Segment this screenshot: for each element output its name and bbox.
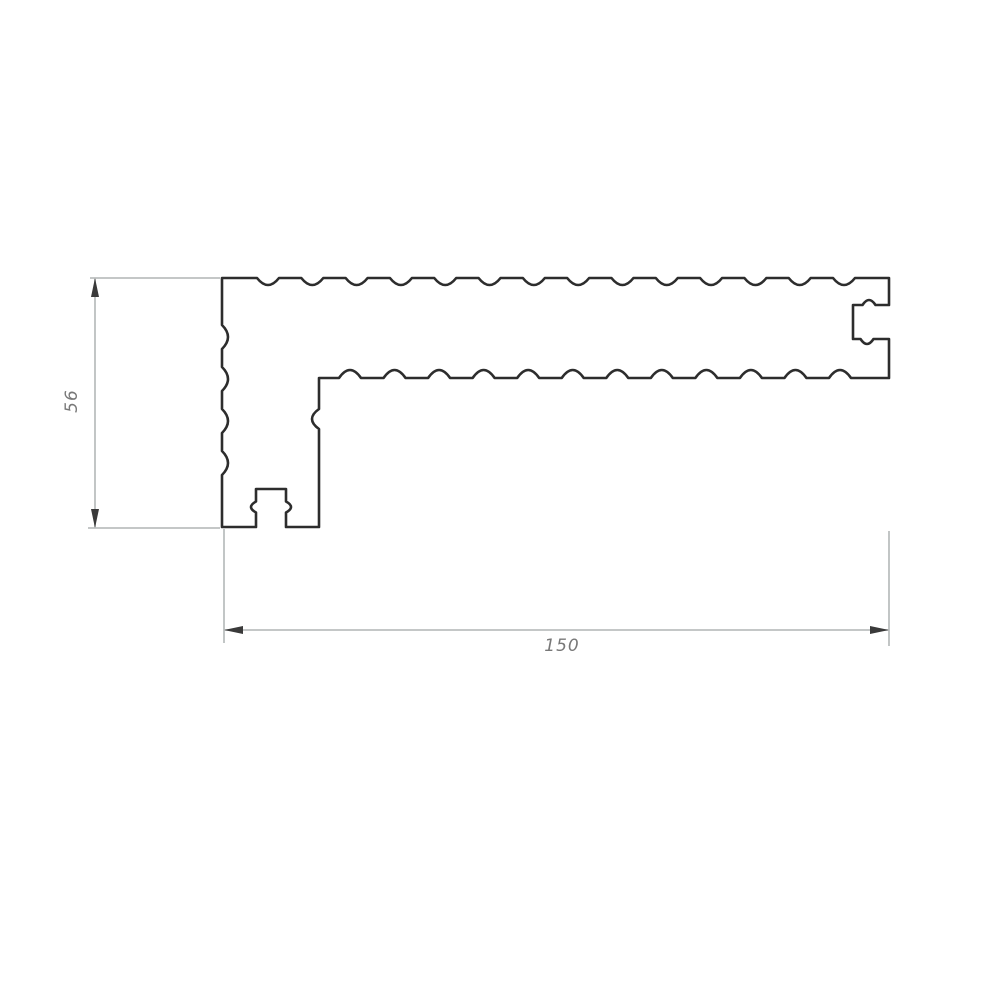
height-dimension: 56 (62, 278, 220, 528)
technical-drawing: 56 150 (0, 0, 1000, 1000)
profile-outline (222, 278, 889, 527)
height-dimension-label: 56 (62, 389, 82, 413)
arrow-left-icon (224, 626, 243, 634)
drawing-canvas: 56 150 (0, 0, 1000, 1000)
width-dimension: 150 (224, 529, 889, 656)
arrow-right-icon (870, 626, 889, 634)
arrow-down-icon (91, 509, 99, 528)
width-dimension-label: 150 (544, 636, 579, 656)
arrow-up-icon (91, 278, 99, 297)
